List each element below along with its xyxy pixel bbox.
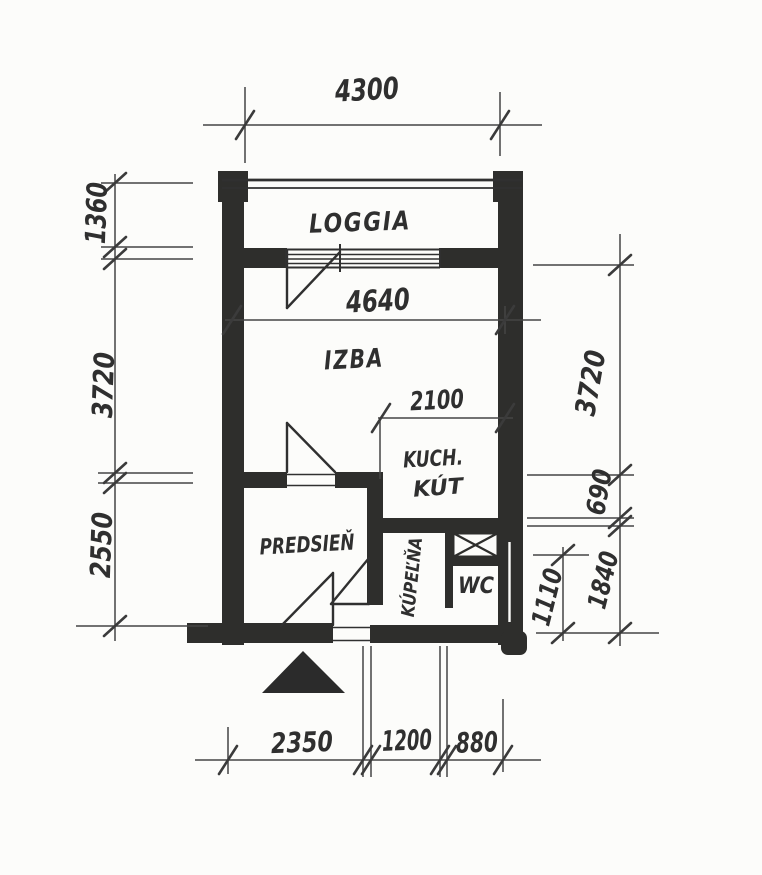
wall-corner-top-right	[493, 171, 523, 202]
dim-bottom-hall-width: 2350	[270, 725, 333, 760]
shaft-box	[453, 533, 498, 557]
wall-corner-top-left	[218, 171, 248, 202]
room-label-kitchen-line1: KUCH.	[402, 445, 463, 473]
room-label-loggia: LOGGIA	[309, 206, 412, 240]
room-label-izba: IZBA	[323, 343, 384, 376]
room-label-hall: PREDSIEŇ	[259, 530, 355, 561]
room-label-bath: KÚPEĽŇA	[397, 536, 427, 618]
window	[286, 244, 440, 272]
dimension-lines	[76, 87, 659, 777]
dim-kitchen-width: 2100	[409, 385, 464, 418]
dim-bottom-wc-width: 880	[455, 725, 498, 759]
dim-right-room-depth: 3720	[569, 348, 613, 419]
dim-left-hall-depth: 2550	[84, 511, 119, 578]
room-door-swing	[287, 423, 335, 472]
wall-bottom-left	[187, 623, 333, 643]
wall-corner-bottom-right	[501, 631, 527, 655]
dim-left-loggia-depth: 1360	[79, 181, 114, 244]
floor-plan-sheet: 4300 4640 2100 1360 3720 2550 3720 690 1…	[0, 0, 762, 875]
room-label-kitchen-line2: KÚT	[412, 473, 466, 503]
dim-bottom-bath-width: 1200	[381, 723, 432, 758]
wall-left	[222, 173, 244, 645]
bath-door-swing	[331, 558, 369, 604]
wall-bottom-right	[370, 625, 523, 643]
loggia-railing	[222, 180, 522, 188]
entrance-arrow	[262, 651, 345, 693]
floor-plan-drawing: 4300 4640 2100 1360 3720 2550 3720 690 1…	[0, 0, 762, 875]
dim-right-bath-depth: 1840	[582, 548, 625, 612]
wall-window-left-pier	[222, 248, 286, 268]
entrance-door-swing	[281, 573, 333, 626]
dim-interior-width: 4640	[344, 282, 411, 320]
wall-bath-top	[375, 518, 523, 533]
wall-hall-partition-left	[222, 472, 287, 488]
dim-left-room-depth: 3720	[86, 351, 121, 418]
wall-window-right-pier	[440, 248, 520, 268]
room-label-wc: WC	[458, 574, 494, 599]
dim-top-width: 4300	[333, 71, 400, 109]
